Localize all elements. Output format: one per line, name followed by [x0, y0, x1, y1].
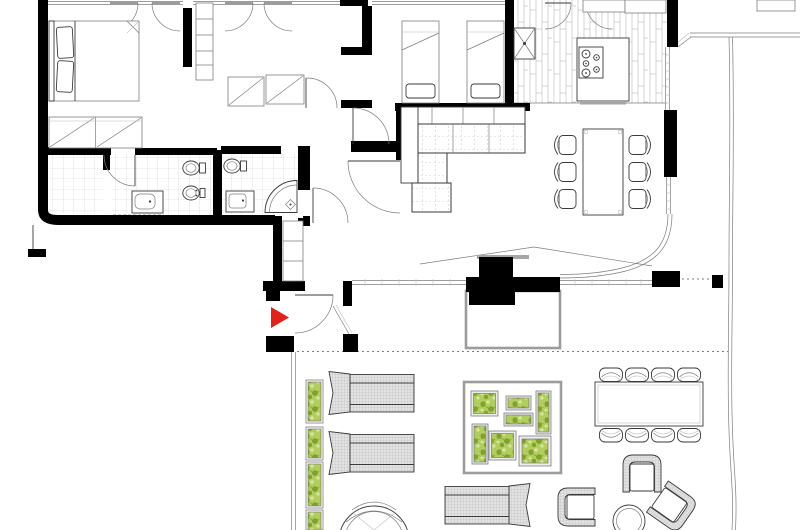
planter	[506, 415, 531, 424]
outdoor-chair	[678, 368, 701, 382]
sofa-seat-corner	[418, 153, 447, 183]
outdoor-table	[595, 382, 703, 426]
dining-chair	[555, 163, 577, 182]
toilet-icon	[183, 161, 206, 175]
shelving-column	[196, 3, 213, 80]
pillow	[471, 84, 500, 98]
planter	[522, 439, 548, 463]
headboard	[49, 21, 54, 101]
sun-lounger	[329, 372, 414, 415]
laundry-floor	[50, 152, 103, 213]
outdoor-chair	[600, 368, 623, 382]
outdoor-chair	[652, 368, 675, 382]
master-wardrobe	[49, 117, 142, 148]
planter	[474, 394, 496, 414]
entrance-arrow-icon	[271, 307, 289, 328]
pillow	[56, 61, 74, 93]
outdoor-chair	[678, 429, 701, 443]
living-room	[401, 107, 525, 212]
floor-plan-screenshot	[0, 0, 800, 530]
entrance-vestibule	[271, 295, 352, 334]
entry-door-arc	[295, 295, 333, 333]
planter-column	[306, 380, 323, 530]
dining-chair	[629, 136, 651, 155]
planter	[474, 426, 486, 462]
sun-lounger	[445, 484, 530, 527]
door-arc	[353, 108, 389, 144]
hanging-egg-chair	[339, 502, 409, 530]
planter	[492, 434, 514, 458]
dining-chair	[555, 136, 577, 155]
vanity-basin	[226, 191, 254, 212]
kitchen-terrace-slider	[665, 47, 670, 110]
outdoor-chair	[652, 429, 675, 443]
dressing-room	[196, 3, 337, 108]
planter	[538, 393, 549, 432]
planter-cluster	[464, 382, 561, 473]
armchair	[623, 455, 661, 492]
planter	[508, 398, 529, 408]
planter	[308, 512, 321, 530]
pillow	[56, 27, 74, 59]
single-bed	[467, 21, 504, 103]
bathroom-floors	[50, 152, 298, 216]
terrace	[306, 368, 703, 530]
pillow	[406, 84, 435, 98]
planter	[308, 382, 321, 421]
dining-window	[666, 177, 671, 214]
planter	[308, 464, 321, 506]
toilet-icon	[224, 159, 247, 173]
outdoor-chair	[626, 429, 649, 443]
door-arc	[348, 161, 400, 213]
curved-glass-wall	[560, 214, 668, 275]
canopy-zigzag-line	[420, 247, 652, 266]
sofa-seat	[418, 124, 525, 153]
sun-lounger	[329, 432, 414, 475]
bidet-icon	[183, 186, 205, 200]
angled-door	[333, 306, 349, 334]
counter	[625, 0, 666, 13]
sofa-arm	[401, 107, 418, 183]
ottoman	[412, 183, 451, 212]
outdoor-dining	[595, 368, 703, 442]
kitchen-island	[577, 38, 629, 105]
counter	[583, 0, 625, 12]
sink-icon	[514, 28, 535, 59]
dining-chair	[629, 190, 651, 209]
outdoor-chair	[600, 429, 623, 443]
armchair	[558, 488, 595, 526]
outdoor-chair	[626, 368, 649, 382]
hallway	[313, 161, 400, 223]
single-bed	[402, 21, 439, 103]
floor-plan-canvas	[0, 0, 800, 530]
planter	[308, 429, 321, 458]
master-bedroom	[49, 21, 142, 148]
hall-closet-shaft	[283, 221, 303, 281]
lounge-set	[558, 455, 699, 530]
door-arc	[306, 78, 337, 108]
dining-chair	[629, 163, 651, 182]
dining-area	[555, 129, 651, 215]
dining-chair	[555, 190, 577, 209]
door-arc	[313, 188, 348, 223]
dining-table	[583, 129, 623, 215]
